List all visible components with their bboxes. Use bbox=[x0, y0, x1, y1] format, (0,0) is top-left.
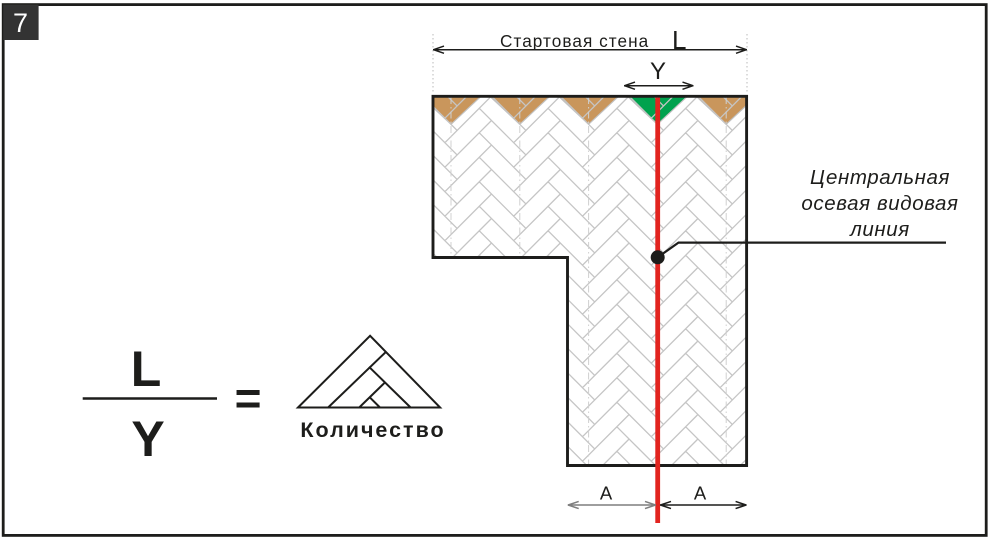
svg-text:Количество: Количество bbox=[300, 418, 445, 442]
svg-text:осевая видовая: осевая видовая bbox=[801, 192, 958, 215]
svg-text:Y: Y bbox=[650, 58, 666, 85]
svg-text:L: L bbox=[131, 341, 162, 397]
svg-text:А: А bbox=[694, 483, 707, 504]
svg-text:Центральная: Центральная bbox=[810, 166, 950, 189]
svg-text:Y: Y bbox=[131, 411, 164, 467]
svg-text:=: = bbox=[235, 372, 262, 424]
svg-text:7: 7 bbox=[13, 8, 28, 38]
svg-text:L: L bbox=[672, 25, 686, 55]
svg-text:А: А bbox=[600, 483, 613, 504]
svg-text:Стартовая стена: Стартовая стена bbox=[500, 31, 649, 51]
svg-text:линия: линия bbox=[849, 218, 910, 241]
